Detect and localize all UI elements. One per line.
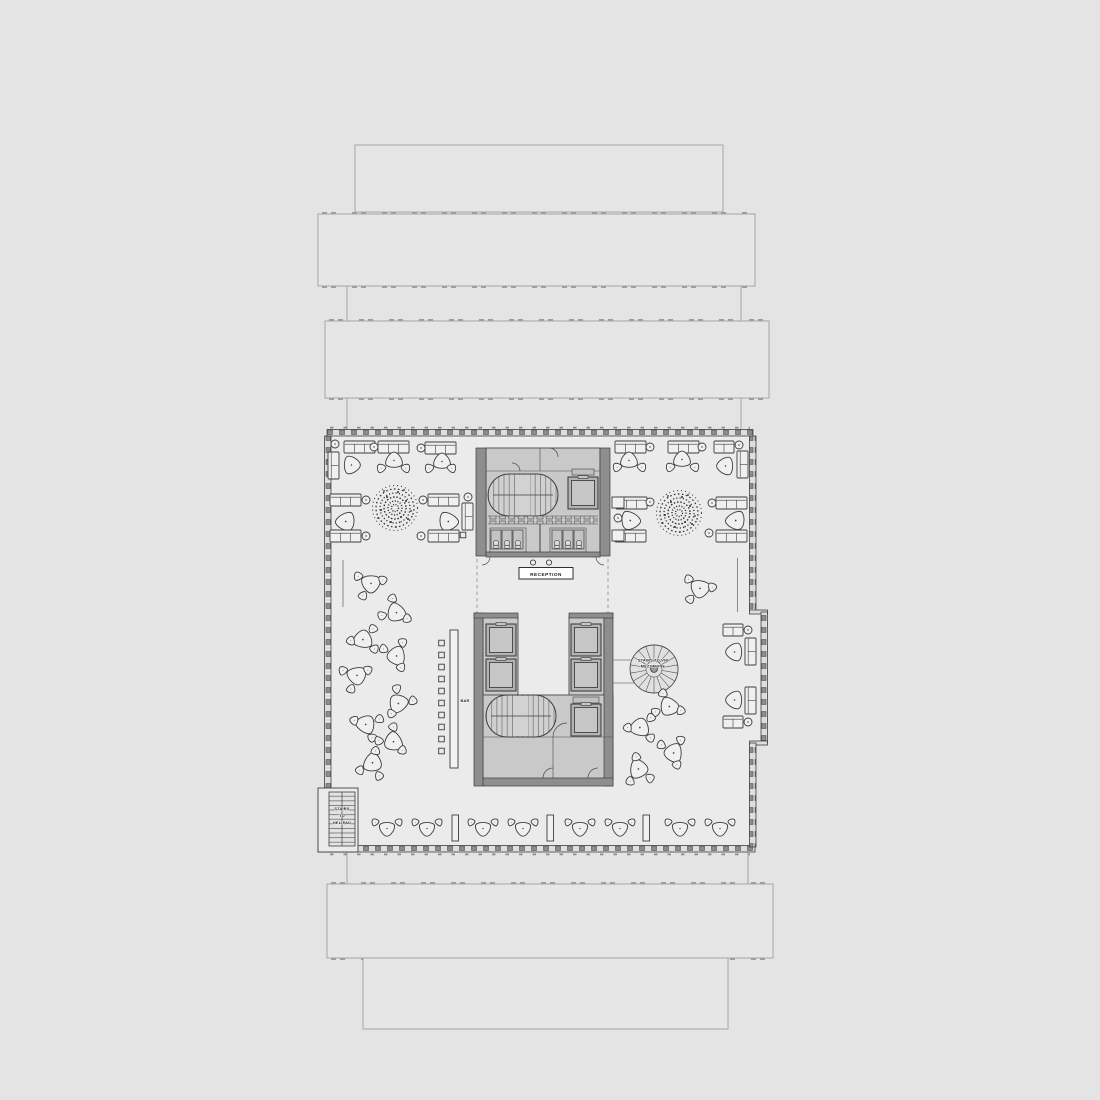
elevator-icon	[571, 623, 601, 656]
couch-icon	[462, 503, 473, 530]
bar-stool-icon	[439, 724, 445, 730]
exterior-wall-east-upper	[750, 436, 757, 612]
round-table-icon	[708, 499, 716, 507]
floor-plan-page: RECEPTION BAR	[0, 0, 1100, 1100]
bar-label: BAR	[460, 698, 469, 703]
helipad-label-line1: STAIRS	[334, 806, 349, 811]
bench-icon	[452, 815, 459, 841]
round-table-icon	[362, 496, 370, 504]
sofa-icon	[714, 441, 734, 453]
couch-icon	[737, 451, 748, 478]
wc-stall-icon	[513, 530, 523, 549]
sofa-icon	[723, 716, 743, 728]
locker-row	[488, 516, 598, 524]
wing-outline-2	[325, 321, 769, 398]
spiral-stair-icon	[630, 645, 678, 693]
sofa-icon	[330, 494, 361, 506]
helipad-label-line2: TO	[339, 813, 345, 818]
core-wall-east	[600, 448, 610, 556]
sofa-icon	[716, 497, 747, 509]
core-wall-west	[476, 448, 486, 556]
round-table-icon	[362, 532, 370, 540]
core-wall-cap	[569, 613, 613, 618]
wc-stall-icon	[563, 530, 573, 549]
wc-stall-icon	[552, 530, 562, 549]
elevator-icon	[486, 623, 516, 656]
column	[546, 560, 551, 565]
side-table-icon	[460, 532, 466, 538]
round-table-icon	[417, 532, 425, 540]
round-table-icon	[744, 626, 752, 634]
side-table-icon	[612, 497, 624, 508]
upper-floor-outlines	[318, 145, 769, 430]
round-table-icon	[419, 496, 427, 504]
core-wall-south	[483, 778, 613, 786]
round-table-icon	[698, 443, 706, 451]
wing-outline-3	[327, 884, 773, 958]
round-table-icon	[646, 443, 654, 451]
couch-icon	[328, 452, 339, 479]
exterior-wall-east-bay	[761, 612, 768, 743]
sofa-icon	[615, 441, 646, 453]
round-table-icon	[417, 444, 425, 452]
floor-plan-canvas: RECEPTION BAR	[0, 0, 1100, 1100]
bar-stool-icon	[439, 688, 445, 694]
bar-stool-icon	[439, 652, 445, 658]
bar-stool-icon	[439, 736, 445, 742]
elevator-icon	[571, 703, 601, 736]
bar-counter	[450, 630, 458, 768]
switchback-stair-icon	[488, 474, 558, 516]
bench-icon	[547, 815, 554, 841]
elevator-icon	[568, 476, 598, 509]
sofa-icon	[330, 530, 361, 542]
exterior-wall-east-lower	[750, 743, 757, 847]
vip-stairs-label-line1: STAIRS TO VIP	[638, 658, 669, 663]
bar-stool-icon	[439, 676, 445, 682]
bar-stool-icon	[439, 748, 445, 754]
round-table-icon	[370, 443, 378, 451]
round-table-icon	[331, 440, 339, 448]
exterior-wall-west	[325, 436, 332, 790]
elevator-icon	[486, 658, 516, 691]
round-table-icon	[744, 718, 752, 726]
sofa-icon	[723, 624, 743, 636]
exterior-wall-south	[318, 846, 755, 853]
sofa-icon	[428, 494, 459, 506]
column	[530, 560, 535, 565]
roof-outline-top	[355, 145, 723, 212]
lift-lobby	[572, 469, 594, 475]
bar-stool-icon	[439, 712, 445, 718]
sofa-icon	[428, 530, 459, 542]
roof-outline-bottom	[363, 958, 728, 1029]
core-wall-east	[604, 613, 613, 786]
round-table-icon	[705, 529, 713, 537]
exterior-wall-north	[327, 430, 753, 437]
helipad-label-line3: HELIPAD	[333, 820, 351, 825]
wc-stall-icon	[502, 530, 512, 549]
vip-stairs-label-line2: MEZZANINE	[641, 664, 666, 669]
elevator-icon	[571, 658, 601, 691]
sofa-icon	[716, 530, 747, 542]
round-table-icon	[464, 493, 472, 501]
reception-label: RECEPTION	[530, 572, 562, 577]
side-table-icon	[612, 530, 624, 541]
helipad-stair: STAIRS TO HELIPAD	[318, 788, 358, 852]
core-wall-west	[474, 613, 483, 786]
core-wall-cap	[474, 613, 518, 618]
round-table-icon	[614, 514, 622, 522]
round-table-icon	[735, 441, 743, 449]
sofa-icon	[425, 442, 456, 454]
lift-lobby	[573, 697, 599, 703]
lower-floor-outlines	[327, 852, 773, 1029]
round-table-icon	[646, 498, 654, 506]
bench-icon	[643, 815, 650, 841]
switchback-stair-icon	[486, 695, 556, 737]
sofa-icon	[378, 441, 409, 453]
couch-icon	[745, 687, 756, 714]
wing-outline-1	[318, 214, 755, 286]
bar-stool-icon	[439, 664, 445, 670]
bar-stool-icon	[439, 700, 445, 706]
wc-stall-icon	[491, 530, 501, 549]
couch-icon	[745, 638, 756, 665]
bar-stool-icon	[439, 640, 445, 646]
core-wall-south	[486, 552, 600, 557]
wc-stall-icon	[574, 530, 584, 549]
